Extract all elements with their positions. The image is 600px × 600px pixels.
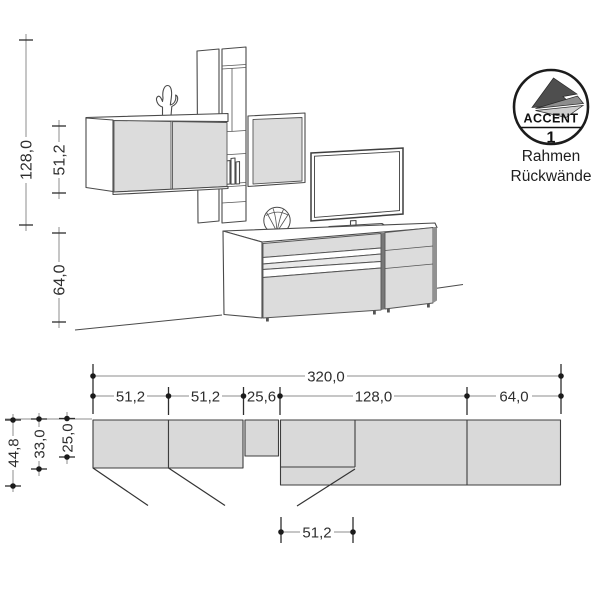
dim-dot <box>36 466 42 472</box>
sideboard-right-edge <box>433 228 437 304</box>
dim-dot <box>558 373 564 379</box>
book <box>231 158 235 184</box>
accent-badge: ACCENT 1 Rahmen Rückwände <box>511 70 592 185</box>
dim-depth-outer-label: 44,8 <box>6 438 23 467</box>
cabinet-side-panel <box>86 118 113 192</box>
tv <box>311 148 403 231</box>
badge-label: ACCENT <box>523 112 578 126</box>
badge-number: 1 <box>547 130 556 147</box>
dim-dot <box>64 416 70 422</box>
dim-total-width-label: 320,0 <box>307 369 345 386</box>
dim-dot <box>10 417 16 423</box>
books-decoration <box>226 158 240 184</box>
plan-shapes <box>93 420 561 506</box>
dim-segment-label: 51,2 <box>191 389 220 406</box>
dim-upper-height-label: 51,2 <box>52 144 69 175</box>
dim-dot <box>90 373 96 379</box>
plan-cabinet-2 <box>169 420 244 468</box>
foot <box>387 309 390 313</box>
sideboard-drawer-unit <box>385 228 433 310</box>
dim-dot <box>241 393 247 399</box>
dim-dot <box>90 393 96 399</box>
elevation-dimensions: 128,0 51,2 64,0 <box>19 34 69 328</box>
cabinet-door-1 <box>114 121 171 193</box>
foot <box>427 304 430 308</box>
cabinet-door-3 <box>253 118 302 185</box>
sideboard-side-panel <box>223 231 262 318</box>
dim-dot <box>464 393 470 399</box>
wall-cabinet-right <box>248 113 305 187</box>
dim-dot <box>277 393 283 399</box>
plan-shelf-column <box>245 420 279 456</box>
sideboard-divider <box>381 233 385 310</box>
elevation-view: 128,0 51,2 64,0 <box>19 34 464 330</box>
plan-view: 320,0 51,2 51,2 <box>5 364 564 543</box>
plan-cabinet-1 <box>93 420 169 468</box>
dim-depth-mid-label: 33,0 <box>32 429 49 458</box>
dim-depth-inner-label: 25,0 <box>60 423 77 452</box>
dim-total-height-label: 128,0 <box>19 140 36 180</box>
furniture-spec-sheet: 128,0 51,2 64,0 <box>0 0 600 600</box>
badge-caption-line2: Rückwände <box>511 168 592 185</box>
dim-segment-label: 128,0 <box>355 389 393 406</box>
dim-lower-height-label: 64,0 <box>52 264 69 295</box>
dim-segment-label: 64,0 <box>499 389 528 406</box>
dim-dot <box>278 529 284 535</box>
dim-total-height: 128,0 <box>19 34 36 231</box>
sideboard <box>223 223 437 322</box>
door-swing-line <box>93 468 148 506</box>
door-swing-line <box>169 468 226 506</box>
badge-caption-line1: Rahmen <box>522 148 581 165</box>
book <box>236 162 240 185</box>
floor-line-left <box>75 315 222 330</box>
dim-door-width-label: 51,2 <box>302 525 331 542</box>
dim-door-width: 51,2 <box>278 517 356 543</box>
dim-dot <box>36 416 42 422</box>
plan-sideboard <box>281 420 561 485</box>
foot <box>266 318 269 322</box>
cactus-decoration <box>157 86 178 119</box>
dim-dot <box>350 529 356 535</box>
cabinet-door-2 <box>173 122 228 190</box>
dim-dot <box>64 454 70 460</box>
dim-dot <box>166 393 172 399</box>
floor-line-right <box>435 285 463 289</box>
dim-lower-height: 64,0 <box>52 227 69 328</box>
technical-drawing: 128,0 51,2 64,0 <box>0 0 600 600</box>
tv-screen <box>315 152 400 218</box>
dim-depths: 44,8 33,0 25,0 <box>5 412 92 492</box>
dim-segment-label: 25,6 <box>247 389 276 406</box>
dim-upper-height: 51,2 <box>52 120 69 199</box>
foot <box>373 311 376 315</box>
dim-segment-label: 51,2 <box>116 389 145 406</box>
dim-segments: 51,2 51,2 25,6 128,0 64,0 <box>90 387 564 415</box>
dim-dot <box>558 393 564 399</box>
dim-dot <box>10 483 16 489</box>
dim-total-width: 320,0 <box>90 364 564 414</box>
wall-cabinet-left <box>86 114 228 195</box>
